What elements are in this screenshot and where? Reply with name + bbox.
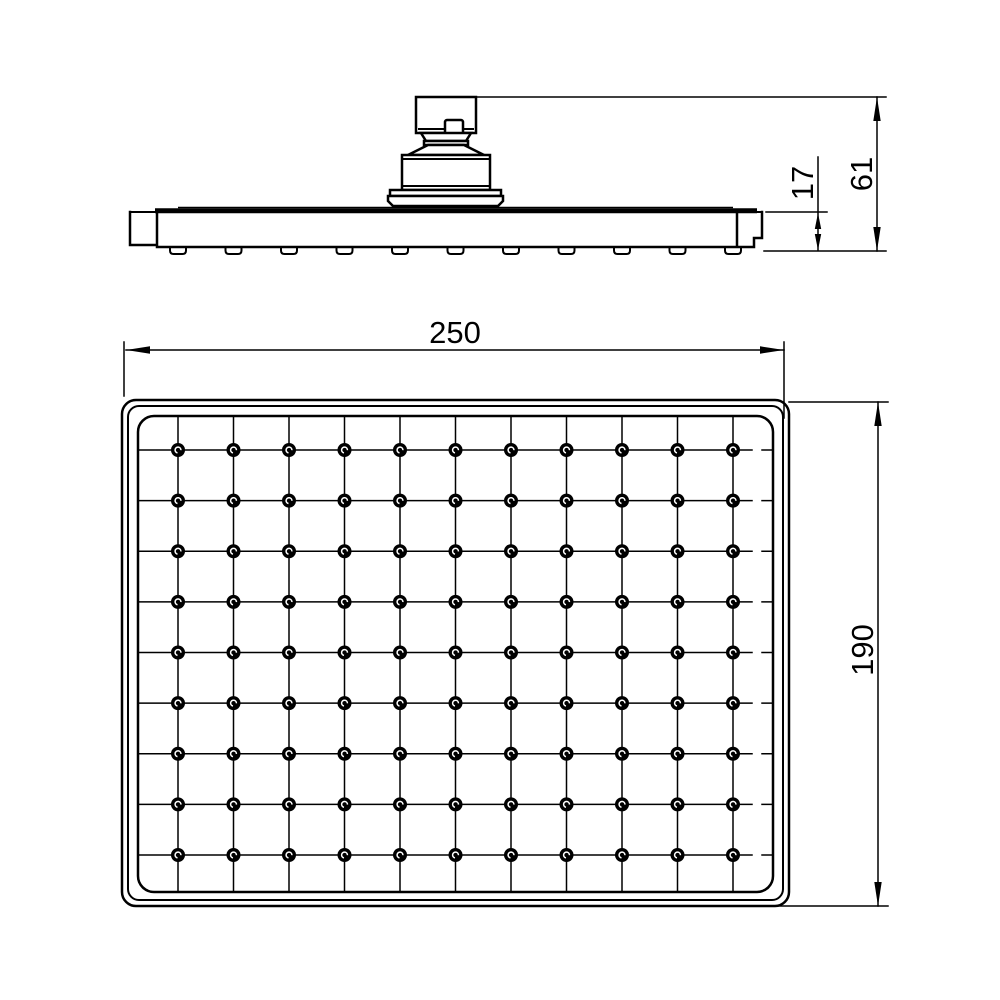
nozzle [671,848,685,862]
nozzle [171,848,185,862]
nozzle-body [671,544,685,558]
nozzle [615,544,629,558]
nozzle [671,696,685,710]
nozzle-body [393,646,407,660]
nozzle-body [171,797,185,811]
nozzle-body [338,797,352,811]
nozzle [560,747,574,761]
nozzle-body [504,595,518,609]
nozzle-body [560,646,574,660]
nozzle-body [449,797,463,811]
nozzle-body [338,443,352,457]
nozzle [171,646,185,660]
nozzle-body [338,848,352,862]
nozzle-body [171,595,185,609]
nozzle [393,747,407,761]
nozzle-body [671,494,685,508]
nozzle [726,595,740,609]
nozzle [338,797,352,811]
nozzle [393,696,407,710]
side-view [130,97,762,254]
nozzle [504,696,518,710]
nozzle [338,848,352,862]
nozzle-body [338,595,352,609]
nozzle-body [615,595,629,609]
nozzle-body [504,494,518,508]
nozzle [338,494,352,508]
nozzle [338,646,352,660]
nozzle-body [671,696,685,710]
nozzle [671,747,685,761]
nozzle-body [615,797,629,811]
nozzle [282,595,296,609]
nozzle [171,595,185,609]
nozzle [282,797,296,811]
nozzle-body [393,848,407,862]
nozzle [227,443,241,457]
nozzle-body [171,646,185,660]
nozzle-body [449,494,463,508]
nozzle [615,797,629,811]
nozzle-body [726,443,740,457]
nozzle-body [282,848,296,862]
nozzle-body [560,797,574,811]
nozzle [282,544,296,558]
nozzle-body [171,696,185,710]
nozzle [393,544,407,558]
nozzle [282,443,296,457]
arrowhead-right [760,346,784,353]
nozzle [171,544,185,558]
nozzle [227,747,241,761]
nozzle [726,494,740,508]
dimension-overall-height: 61 [476,97,886,251]
nozzle-body [338,544,352,558]
nozzle-body [449,646,463,660]
dimension-plan-width: 250 [124,315,784,418]
nozzle [449,544,463,558]
nozzle-body [615,443,629,457]
arrowhead-bottom [873,227,880,251]
nozzle [227,595,241,609]
nozzle-body [227,494,241,508]
nozzle-body [227,646,241,660]
nozzle-body [615,494,629,508]
nozzle-body [338,646,352,660]
nozzle-body [227,443,241,457]
nozzle [393,443,407,457]
nozzle-body [726,797,740,811]
nozzle [726,797,740,811]
nozzle-body [227,696,241,710]
nozzle-body [449,696,463,710]
nozzle-body [560,494,574,508]
nozzle-body [615,747,629,761]
nozzle-body [449,544,463,558]
nozzle [338,544,352,558]
nozzle [726,696,740,710]
nozzle-body [726,696,740,710]
nozzle [338,443,352,457]
nozzle [560,443,574,457]
nozzle-body [171,494,185,508]
nozzle [393,494,407,508]
nozzle [504,848,518,862]
nozzle [560,494,574,508]
nozzle [171,747,185,761]
nozzle [504,595,518,609]
nozzle [171,797,185,811]
nozzle-body [726,595,740,609]
nozzle-body [560,696,574,710]
nozzle-body [449,848,463,862]
nozzle [449,797,463,811]
nozzle-body [282,696,296,710]
nozzle [282,646,296,660]
nozzle [227,646,241,660]
nozzle [171,443,185,457]
nozzle-body [504,443,518,457]
nozzle-body [726,544,740,558]
nozzle [560,544,574,558]
nozzle-body [171,848,185,862]
nozzle [726,544,740,558]
nozzle-body [560,595,574,609]
nozzle-body [171,747,185,761]
arrowhead-bottom [874,882,881,906]
nozzle [671,544,685,558]
nozzle [171,494,185,508]
nozzle [560,848,574,862]
nozzle [615,747,629,761]
nozzle [338,696,352,710]
nozzle-body [393,494,407,508]
nozzle [615,595,629,609]
nozzle-body [560,747,574,761]
arrowhead-top [873,97,880,121]
nozzle-body [615,696,629,710]
dimension-label-plate-thickness: 17 [785,166,820,200]
technical-drawing-canvas: 250 190 61 17 [0,0,1000,1000]
nozzle [227,797,241,811]
nozzle [560,797,574,811]
nozzle [615,443,629,457]
nozzle-body [171,544,185,558]
nozzle [282,696,296,710]
nozzle [560,696,574,710]
nozzle-body [227,797,241,811]
nozzle [227,696,241,710]
nozzle [449,646,463,660]
nozzle [615,494,629,508]
nozzle-body [726,747,740,761]
nozzle [671,595,685,609]
nozzle-body [227,747,241,761]
nozzle-body [282,646,296,660]
nozzle-body [671,595,685,609]
nozzle [726,747,740,761]
nozzle-body [393,696,407,710]
nozzle-body [726,646,740,660]
nozzle [671,646,685,660]
nozzle [449,595,463,609]
nozzle [393,595,407,609]
nozzle [449,443,463,457]
nozzle-body [671,848,685,862]
nozzle [227,544,241,558]
nozzle-body [504,696,518,710]
nozzle [671,494,685,508]
nozzle [726,646,740,660]
plan-view [122,400,789,906]
nozzle [393,848,407,862]
nozzle [282,494,296,508]
nozzle [726,443,740,457]
nozzle-body [282,494,296,508]
nozzle-body [726,494,740,508]
nozzle [227,848,241,862]
nozzle-body [504,747,518,761]
nozzle-body [393,443,407,457]
nozzle-body [282,595,296,609]
nozzle-body [671,646,685,660]
nozzle-body [393,544,407,558]
nozzle-body [671,797,685,811]
nozzle [338,747,352,761]
nozzle-body [227,848,241,862]
dimension-label-plan-width: 250 [429,315,481,350]
arrowhead-top [874,402,881,426]
drawing-sheet: 250 190 61 17 [0,0,1000,1000]
nozzle [227,494,241,508]
nozzle-body [615,544,629,558]
nozzle-body [282,747,296,761]
nozzle [449,494,463,508]
arrowhead-down [815,234,821,250]
nozzle [615,696,629,710]
nozzle [504,494,518,508]
nozzle-body [504,848,518,862]
nozzle-body [393,595,407,609]
nozzle [671,443,685,457]
nozzle-body [449,595,463,609]
nozzle-body [615,646,629,660]
nozzle [449,747,463,761]
nozzle-body [393,797,407,811]
nozzle-body [615,848,629,862]
nozzle-body [227,595,241,609]
nozzle [282,747,296,761]
nozzle-body [227,544,241,558]
mounting-flange-lower [388,196,503,206]
nozzle [560,595,574,609]
nozzle-body [671,443,685,457]
nozzle-body [560,443,574,457]
dimension-plate-thickness: 17 [766,157,827,250]
connector-base [402,155,490,190]
nozzle-body [338,494,352,508]
nozzle [393,646,407,660]
nozzle-body [282,797,296,811]
dimension-plan-height: 190 [770,402,888,906]
nozzle-body [449,443,463,457]
nozzle [615,646,629,660]
dimension-label-plan-height: 190 [845,624,880,676]
connector-cone [408,145,484,155]
nozzle-body [560,544,574,558]
nozzle [338,595,352,609]
nozzle-body [504,544,518,558]
nozzle [393,797,407,811]
plate-side-profile [130,211,762,247]
nozzle-body [449,747,463,761]
nozzle [560,646,574,660]
nozzle-body [560,848,574,862]
nozzle [282,848,296,862]
nozzle-body [504,646,518,660]
nozzle [504,747,518,761]
arrowhead-up [815,213,821,229]
nozzle [726,848,740,862]
nozzle [504,443,518,457]
nozzle-body [726,848,740,862]
nozzle [171,696,185,710]
nozzle [504,544,518,558]
nozzle-body [393,747,407,761]
nozzle [615,848,629,862]
nozzle-body [338,747,352,761]
arrowhead-left [126,346,150,353]
nozzle-body [282,544,296,558]
nozzle [504,797,518,811]
nozzle-body [282,443,296,457]
nozzle-body [671,747,685,761]
nozzle [449,696,463,710]
nozzle [449,848,463,862]
nozzle [671,797,685,811]
dimension-label-overall-height: 61 [844,157,879,191]
nozzle [504,646,518,660]
nozzle-body [504,797,518,811]
nozzle-body [338,696,352,710]
nozzle-body [171,443,185,457]
